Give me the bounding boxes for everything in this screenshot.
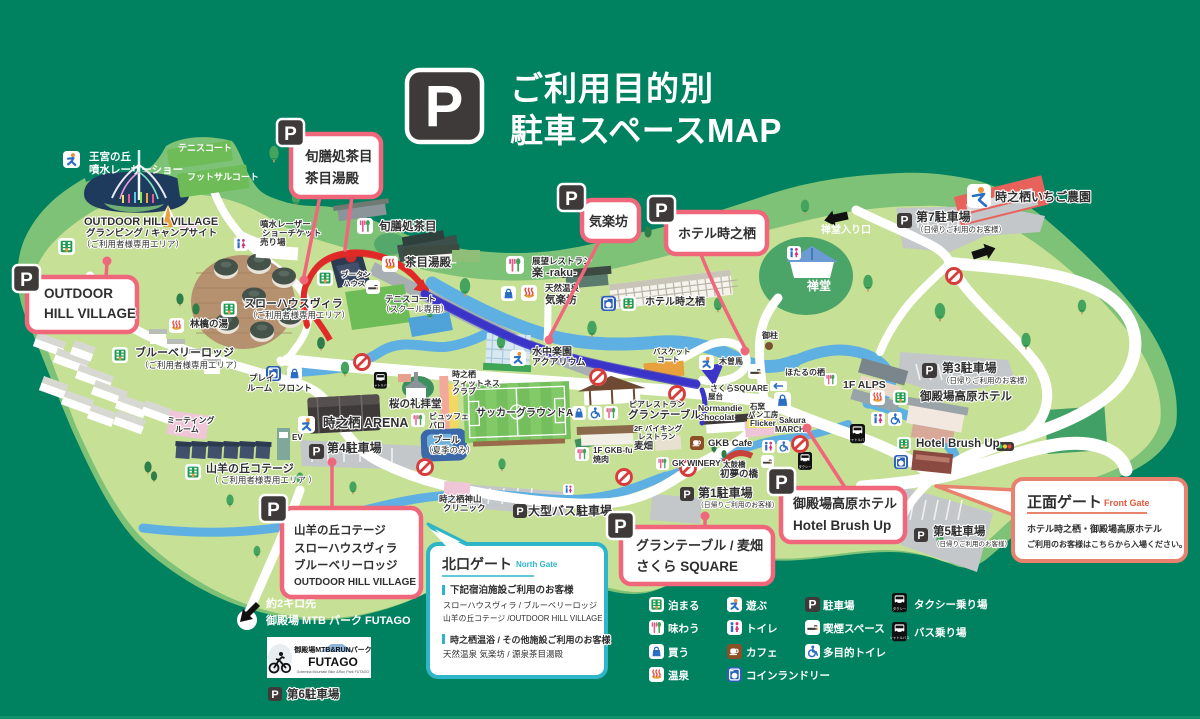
svg-text:天然温泉 気楽坊 / 源泉茶目湯殿: 天然温泉 気楽坊 / 源泉茶目湯殿 <box>443 649 563 659</box>
svg-text:P: P <box>20 270 33 291</box>
svg-text:喫煙スペース: 喫煙スペース <box>823 622 885 635</box>
svg-text:コインランドリー: コインランドリー <box>746 670 830 682</box>
svg-text:禅堂入り口: 禅堂入り口 <box>820 223 871 236</box>
svg-text:太鼓橋: 太鼓橋 <box>723 459 746 469</box>
svg-text:P: P <box>271 689 278 701</box>
svg-text:レストラン: レストラン <box>638 432 676 441</box>
svg-text:P: P <box>516 506 523 518</box>
svg-text:タクシー乗り場: タクシー乗り場 <box>914 598 988 611</box>
svg-text:1F ALPS: 1F ALPS <box>843 379 886 391</box>
svg-text:（日帰りご利用のお客様）: （日帰りご利用のお客様） <box>942 375 1032 385</box>
svg-text:多目的トイレ: 多目的トイレ <box>823 646 886 659</box>
svg-text:（日帰りご利用のお客様）: （日帰りご利用のお客様） <box>697 500 779 509</box>
svg-text:山羊の丘コテージ: 山羊の丘コテージ <box>206 461 294 475</box>
svg-text:OUTDOOR: OUTDOOR <box>44 286 113 301</box>
svg-text:アクアリウム: アクアリウム <box>532 357 586 367</box>
svg-text:バス乗り場: バス乗り場 <box>914 626 967 639</box>
svg-text:ルーム: ルーム <box>175 425 199 434</box>
svg-text:EV: EV <box>292 433 303 442</box>
svg-text:禅堂: 禅堂 <box>806 278 831 293</box>
svg-text:クラブ: クラブ <box>452 386 476 396</box>
svg-text:P: P <box>683 489 690 501</box>
svg-text:さくら SQUARE: さくら SQUARE <box>636 559 738 574</box>
svg-text:コート: コート <box>657 355 680 364</box>
svg-text:（ご利用者様専用エリア）: （ご利用者様専用エリア） <box>140 360 242 370</box>
svg-text:第1駐車場: 第1駐車場 <box>698 485 753 500</box>
svg-text:Front Gate: Front Gate <box>1104 498 1150 508</box>
svg-text:御殿場MTB&RUNパーク: 御殿場MTB&RUNパーク <box>293 645 371 654</box>
svg-text:ブータン: ブータン <box>341 269 371 279</box>
svg-text:駐車スペースMAP: 駐車スペースMAP <box>510 112 782 149</box>
svg-text:OUTDOOR HILL VILLAGE: OUTDOOR HILL VILLAGE <box>294 577 416 588</box>
svg-text:第5駐車場: 第5駐車場 <box>933 524 986 538</box>
svg-text:グランテーブル: グランテーブル <box>628 408 701 421</box>
svg-text:グランピング / キャンプサイト: グランピング / キャンプサイト <box>86 227 217 239</box>
svg-text:Hotel Brush Up: Hotel Brush Up <box>916 438 1000 450</box>
svg-text:ルーム: ルーム <box>247 383 273 393</box>
svg-text:HILL VILLAGE: HILL VILLAGE <box>44 306 136 321</box>
svg-text:カフェ: カフェ <box>746 647 778 659</box>
svg-text:（ご利用者様専用エリア）: （ご利用者様専用エリア） <box>248 310 350 320</box>
svg-text:P: P <box>775 473 788 494</box>
svg-text:P: P <box>425 74 464 139</box>
svg-text:シャトルバス: シャトルバス <box>890 635 910 640</box>
svg-text:御殿場高原ホテル: 御殿場高原ホテル <box>919 389 1012 403</box>
svg-text:P: P <box>925 364 933 378</box>
svg-text:タクシー: タクシー <box>799 464 812 469</box>
svg-text:P: P <box>917 530 924 542</box>
svg-text:正面ゲート: 正面ゲート <box>1027 493 1102 511</box>
svg-text:テニスコート: テニスコート <box>385 294 436 304</box>
svg-text:GK WINERY: GK WINERY <box>672 458 721 468</box>
svg-text:買う: 買う <box>668 647 689 659</box>
svg-text:時之栖いちご農園: 時之栖いちご農園 <box>995 189 1091 204</box>
svg-text:大型バス駐車場: 大型バス駐車場 <box>528 503 612 518</box>
svg-text:P: P <box>284 124 297 145</box>
svg-text:シャトルバス: シャトルバス <box>371 383 390 388</box>
svg-text:（ ご利用者様専用エリア ）: （ ご利用者様専用エリア ） <box>210 475 317 485</box>
svg-text:タクシー: タクシー <box>893 606 906 611</box>
svg-text:OUTDOOR HILL VILLAGE: OUTDOOR HILL VILLAGE <box>84 216 218 228</box>
svg-text:プール: プール <box>433 434 460 445</box>
svg-text:山羊の丘コテージ /OUTDOOR HILL VILLAGE: 山羊の丘コテージ /OUTDOOR HILL VILLAGE <box>443 613 602 623</box>
svg-text:パン工房: パン工房 <box>748 409 779 419</box>
svg-text:焼肉: 焼肉 <box>593 454 609 464</box>
svg-text:Sakura: Sakura <box>779 416 806 425</box>
svg-text:茶目湯殿: 茶目湯殿 <box>404 255 451 269</box>
svg-text:御柱: 御柱 <box>761 330 778 340</box>
svg-text:Gotemba Mountain Bike &Run Par: Gotemba Mountain Bike &Run Park FUTAGO <box>297 670 370 674</box>
svg-text:楽 -raku-: 楽 -raku- <box>531 265 577 279</box>
svg-text:木曽馬: 木曽馬 <box>718 356 743 366</box>
svg-text:P: P <box>312 445 320 459</box>
svg-text:山羊の丘コテージ: 山羊の丘コテージ <box>294 523 386 537</box>
svg-text:Hotel Brush Up: Hotel Brush Up <box>793 518 891 533</box>
svg-text:気楽坊: 気楽坊 <box>589 214 628 229</box>
svg-text:North Gate: North Gate <box>516 560 558 569</box>
svg-text:屋台: 屋台 <box>708 391 723 401</box>
svg-text:麦畑: 麦畑 <box>634 440 654 452</box>
svg-text:ご利用のお客様はこちらから入場ください。: ご利用のお客様はこちらから入場ください。 <box>1027 539 1187 549</box>
svg-text:北口ゲート: 北口ゲート <box>442 556 512 572</box>
svg-text:ブルーベリーロッジ: ブルーベリーロッジ <box>135 345 234 359</box>
svg-text:駐車場: 駐車場 <box>823 599 855 612</box>
svg-text:P: P <box>808 598 816 612</box>
svg-text:ハウス: ハウス <box>343 279 366 288</box>
svg-text:御殿場高原ホテル: 御殿場高原ホテル <box>792 496 897 511</box>
svg-text:第6駐車場: 第6駐車場 <box>287 687 340 701</box>
svg-text:旬膳処茶目: 旬膳処茶目 <box>304 148 373 164</box>
svg-text:クリニック: クリニック <box>443 503 486 513</box>
svg-text:スローハウスヴィラ: スローハウスヴィラ <box>244 296 343 310</box>
svg-text:P: P <box>655 201 668 222</box>
svg-text:グランテーブル / 麦畑: グランテーブル / 麦畑 <box>636 538 763 553</box>
svg-text:旬膳処茶目: 旬膳処茶目 <box>378 219 437 233</box>
svg-text:FUTAGO: FUTAGO <box>308 655 358 669</box>
svg-text:第4駐車場: 第4駐車場 <box>327 440 382 455</box>
svg-text:御殿場 MTB パーク FUTAGO: 御殿場 MTB パーク FUTAGO <box>265 613 411 627</box>
svg-text:桜の礼拝堂: 桜の礼拝堂 <box>389 397 442 410</box>
svg-text:テニスコート: テニスコート <box>178 143 232 153</box>
svg-text:ホテル時之栖・御殿場高原ホテル: ホテル時之栖・御殿場高原ホテル <box>1027 523 1162 534</box>
svg-text:味わう: 味わう <box>668 622 700 635</box>
svg-text:第7駐車場: 第7駐車場 <box>916 209 971 224</box>
svg-text:売り場: 売り場 <box>259 237 286 247</box>
svg-text:ほたるの栖: ほたるの栖 <box>785 367 825 377</box>
svg-text:（日帰りご利用のお客様）: （日帰りご利用のお客様） <box>933 539 1011 548</box>
svg-text:ビュッフェ: ビュッフェ <box>429 411 469 421</box>
svg-text:遊ぶ: 遊ぶ <box>746 599 767 612</box>
svg-text:茶目湯殿: 茶目湯殿 <box>304 170 359 186</box>
svg-text:スローハウスヴィラ: スローハウスヴィラ <box>294 541 397 555</box>
svg-text:（スクール専用）: （スクール専用） <box>381 304 449 314</box>
svg-text:展望レストラン: 展望レストラン <box>531 256 592 266</box>
svg-text:1F GKB-fu: 1F GKB-fu <box>593 446 633 455</box>
svg-text:シャトルバス: シャトルバス <box>848 437 868 442</box>
svg-text:プレイ: プレイ <box>249 373 275 383</box>
svg-text:ミーティング: ミーティング <box>167 415 215 425</box>
svg-text:P: P <box>900 214 908 228</box>
svg-text:サッカーグラウンドA: サッカーグラウンドA <box>476 406 573 419</box>
svg-text:スローハウスヴィラ / ブルーベリーロッジ: スローハウスヴィラ / ブルーベリーロッジ <box>443 600 597 610</box>
svg-text:下記宿泊施設ご利用のお客様: 下記宿泊施設ご利用のお客様 <box>450 584 574 596</box>
svg-text:時之栖 ARENA: 時之栖 ARENA <box>323 415 408 430</box>
svg-text:ご利用目的別: ご利用目的別 <box>510 70 714 107</box>
svg-text:Chocolat: Chocolat <box>698 412 735 422</box>
svg-text:フットサルコート: フットサルコート <box>187 172 259 182</box>
svg-text:時之栖温浴 / その他施設ご利用のお客様: 時之栖温浴 / その他施設ご利用のお客様 <box>450 634 612 645</box>
svg-text:林檎の湯: 林檎の湯 <box>190 318 229 330</box>
svg-text:王宮の丘: 王宮の丘 <box>89 150 131 163</box>
svg-text:P: P <box>614 517 627 538</box>
svg-text:バロ: バロ <box>429 421 445 430</box>
svg-text:ブルーベリーロッジ: ブルーベリーロッジ <box>294 558 398 572</box>
svg-text:時之栖: 時之栖 <box>452 369 476 379</box>
svg-text:ホテル時之栖: ホテル時之栖 <box>678 226 756 241</box>
svg-text:トイレ: トイレ <box>746 623 778 635</box>
svg-text:GKB Cafe: GKB Cafe <box>708 438 752 449</box>
svg-text:P: P <box>267 500 280 521</box>
svg-text:（夏季のみ）: （夏季のみ） <box>424 445 475 455</box>
svg-text:P: P <box>565 189 578 210</box>
svg-text:初夢の橋: 初夢の橋 <box>720 468 759 480</box>
svg-text:温泉: 温泉 <box>668 669 689 682</box>
svg-text:ホテル時之栖: ホテル時之栖 <box>645 295 705 308</box>
svg-text:Flicker: Flicker <box>750 419 776 428</box>
svg-text:ピアレストラン: ピアレストラン <box>629 399 685 409</box>
svg-text:（日帰りご利用のお客様）: （日帰りご利用のお客様） <box>916 224 1006 234</box>
svg-text:泊まる: 泊まる <box>668 599 700 612</box>
svg-text:フロント: フロント <box>278 383 312 393</box>
svg-text:第3駐車場: 第3駐車場 <box>942 360 997 375</box>
svg-text:噴水レーザーショー: 噴水レーザーショー <box>89 163 183 176</box>
svg-text:（ご利用者様専用エリア）: （ご利用者様専用エリア） <box>82 239 184 249</box>
